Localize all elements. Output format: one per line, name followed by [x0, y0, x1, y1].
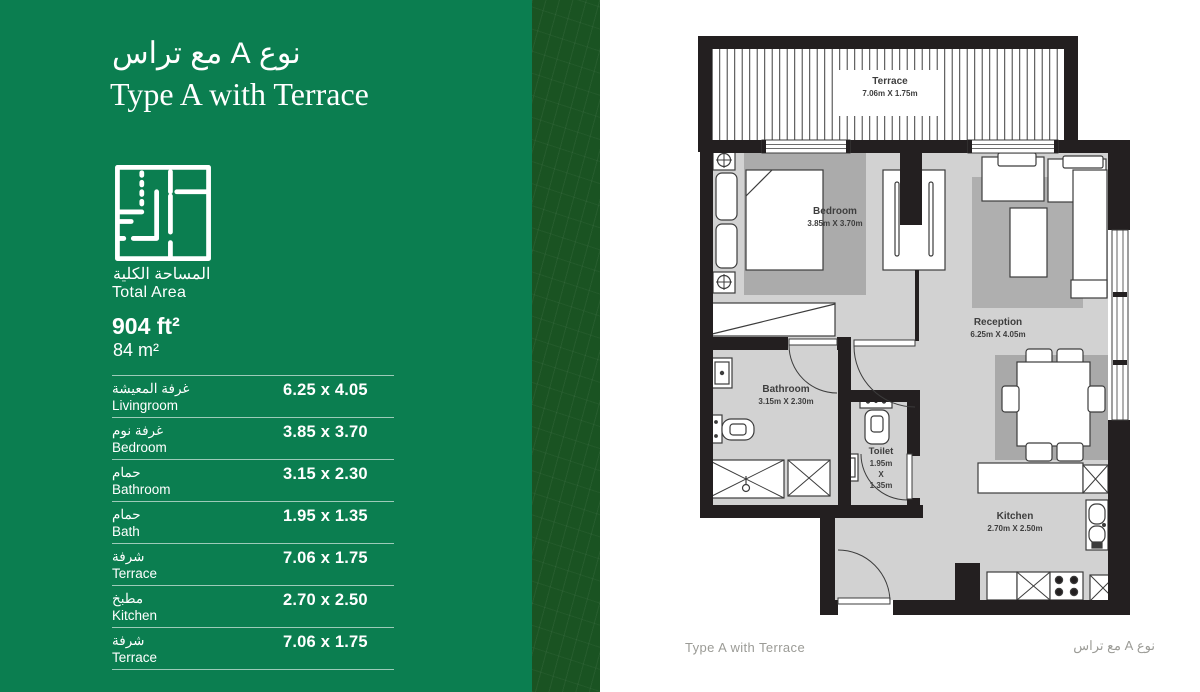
- page-title: Type A with Terrace: [110, 76, 369, 113]
- total-area-sqft: 904 ft²: [112, 313, 180, 340]
- dark-green-divider: [532, 0, 600, 692]
- table-row: غرفة نوم Bedroom 3.85 x 3.70: [112, 417, 394, 459]
- table-row: شرفة Terrace 7.06 x 1.75: [112, 627, 394, 669]
- room-label-name: Toilet: [851, 445, 911, 458]
- room-name: Kitchen: [112, 608, 157, 623]
- room-dimensions-table: غرفة المعيشة Livingroom 6.25 x 4.05 غرفة…: [112, 375, 394, 670]
- total-area-label-arabic: المساحة الكلية: [113, 264, 313, 284]
- room-label-name: Reception: [938, 316, 1058, 329]
- page-title-arabic: نوع A مع تراس: [112, 36, 532, 71]
- room-label-dim: 7.06m X 1.75m: [830, 88, 950, 99]
- room-label-dim: X: [851, 469, 911, 480]
- left-panel: نوع A مع تراس Type A with Terrace المساح…: [0, 0, 532, 692]
- room-name-arabic: شرفة: [112, 549, 144, 565]
- kitchen-label: Kitchen 2.70m X 2.50m: [955, 510, 1075, 534]
- table-row: غرفة المعيشة Livingroom 6.25 x 4.05: [112, 375, 394, 417]
- table-row: مطبخ Kitchen 2.70 x 2.50: [112, 585, 394, 627]
- room-label-name: Bathroom: [726, 383, 846, 396]
- kitchen-sink: [1086, 500, 1108, 550]
- room-name-arabic: غرفة نوم: [112, 423, 163, 439]
- footer-caption-arabic: نوع A مع تراس: [1073, 638, 1155, 654]
- room-label-dim: 3.15m X 2.30m: [726, 396, 846, 407]
- bathroom-wc: [710, 415, 754, 443]
- closet: [708, 303, 835, 336]
- table-row: حمام Bathroom 3.15 x 2.30: [112, 459, 394, 501]
- room-name: Bedroom: [112, 440, 167, 455]
- room-label-dim: 6.25m X 4.05m: [938, 329, 1058, 340]
- room-dimension: 7.06 x 1.75: [283, 633, 368, 652]
- room-name-arabic: حمام: [112, 465, 141, 481]
- total-area-label: Total Area: [112, 284, 186, 302]
- table-row: شرفة Terrace 7.06 x 1.75: [112, 543, 394, 585]
- room-dimension: 6.25 x 4.05: [283, 381, 368, 400]
- window: [762, 140, 850, 153]
- room-label-name: Kitchen: [955, 510, 1075, 523]
- brochure-page: نوع A مع تراس Type A with Terrace المساح…: [0, 0, 1200, 692]
- room-label-dim: 1.95m: [851, 458, 911, 469]
- room-dimension: 3.15 x 2.30: [283, 465, 368, 484]
- room-label-name: Terrace: [830, 75, 950, 88]
- room-name-arabic: مطبخ: [112, 591, 143, 607]
- bathroom-label: Bathroom 3.15m X 2.30m: [726, 383, 846, 407]
- kitchen-unit: [1083, 465, 1108, 493]
- room-name-arabic: غرفة المعيشة: [112, 381, 190, 397]
- footer-caption: Type A with Terrace: [685, 640, 805, 655]
- room-name: Bath: [112, 524, 140, 539]
- terrace-label: Terrace 7.06m X 1.75m: [830, 75, 950, 99]
- dining-set: [1002, 349, 1105, 461]
- window: [1112, 230, 1128, 420]
- table-row: حمام Bath 1.95 x 1.35: [112, 501, 394, 543]
- toilet-wc: [860, 395, 892, 444]
- floorplan: Terrace 7.06m X 1.75m Bedroom 3.85m X 3.…: [686, 24, 1164, 628]
- room-label-name: Bedroom: [775, 205, 895, 218]
- toilet-label: Toilet 1.95m X 1.35m: [851, 445, 911, 491]
- floorplan-drawing: [686, 24, 1164, 628]
- room-name: Livingroom: [112, 398, 178, 413]
- room-label-dim: 1.35m: [851, 480, 911, 491]
- kitchen-counter: [978, 463, 1083, 493]
- coffee-table: [1010, 208, 1047, 277]
- room-name-arabic: حمام: [112, 507, 141, 523]
- total-area-sqm: 84 m²: [113, 340, 159, 361]
- washer-unit: [788, 460, 830, 496]
- room-dimension: 2.70 x 2.50: [283, 591, 368, 610]
- room-name: Terrace: [112, 566, 157, 581]
- stove: [1050, 572, 1083, 600]
- reception-label: Reception 6.25m X 4.05m: [938, 316, 1058, 340]
- nightstand: [713, 272, 735, 293]
- room-dimension: 3.85 x 3.70: [283, 423, 368, 442]
- shower: [708, 460, 784, 498]
- window: [968, 140, 1058, 153]
- room-name: Terrace: [112, 650, 157, 665]
- room-label-dim: 2.70m X 2.50m: [955, 523, 1075, 534]
- kitchen-base-units: [987, 572, 1050, 600]
- room-dimension: 1.95 x 1.35: [283, 507, 368, 526]
- room-dimension: 7.06 x 1.75: [283, 549, 368, 568]
- floorplan-icon: [110, 160, 216, 266]
- room-name-arabic: شرفة: [112, 633, 144, 649]
- room-name: Bathroom: [112, 482, 171, 497]
- room-label-dim: 3.85m X 3.70m: [775, 218, 895, 229]
- bedroom-label: Bedroom 3.85m X 3.70m: [775, 205, 895, 229]
